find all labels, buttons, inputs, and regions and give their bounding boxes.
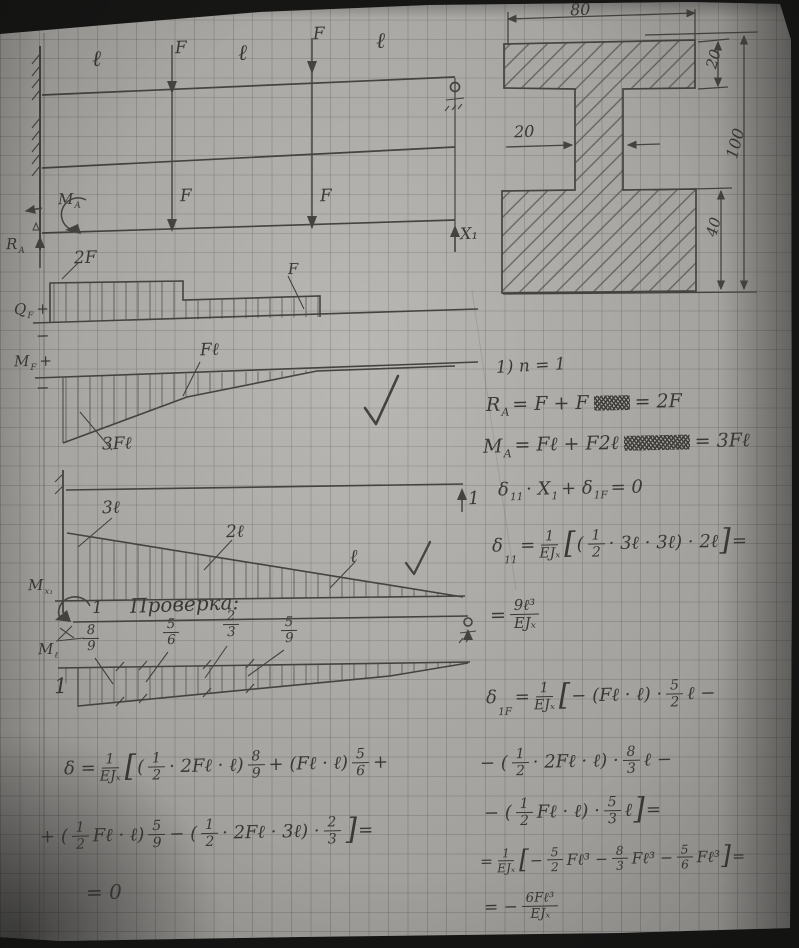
beam-mid-line: [42, 147, 455, 168]
unit-moment-diagram: [55, 470, 467, 613]
mx1-axis-label: Mx₁: [28, 576, 55, 595]
check-frac1: 89: [80, 624, 103, 654]
check-diagram: [55, 597, 476, 707]
mf-peak-label: 3Fℓ: [102, 433, 132, 454]
notebook-page: 80 20 20 100 40 ℓ F ℓ F ℓ MA RA F F X₁ Q…: [0, 0, 799, 948]
check-axis-label: Mℓ: [38, 640, 60, 658]
unit-beam-line: [66, 484, 463, 490]
check-left-ordinate-label: 1: [54, 674, 68, 698]
wall-hatching: [32, 54, 40, 176]
mx1-value3-label: ℓ: [350, 546, 358, 567]
beam2-force2-label: F: [320, 186, 332, 206]
beam1-force1-label: F: [175, 38, 187, 58]
formula-d11-result: = 9ℓ³EJₓ: [490, 597, 543, 631]
checkmark-2: [406, 542, 430, 574]
dim-width-label: 80: [570, 0, 591, 19]
formula-d11: δ11 = 1EJₓ[ (12· 3ℓ · 3ℓ) · 2ℓ ] =: [492, 523, 748, 563]
i-section-outline: [502, 40, 696, 293]
mx1-value2-label: 2ℓ: [226, 522, 245, 543]
beam1-force2-label: F: [313, 24, 325, 44]
dim-web-label: 20: [514, 122, 535, 142]
checkmark-1: [365, 376, 398, 424]
formula-check-2: + (12 Fℓ · ℓ) 59 − (12 · 2Fℓ · 3ℓ) · 23 …: [40, 813, 374, 855]
mf-axis-label: MF +: [14, 352, 52, 371]
check-frac3: 23: [220, 610, 243, 640]
photo-scene: 80 20 20 100 40 ℓ F ℓ F ℓ MA RA F F X₁ Q…: [0, 0, 799, 948]
beam1-seg3-label: ℓ: [376, 28, 386, 54]
mx1-value1-label: 3ℓ: [102, 498, 121, 519]
formula-d1f-result: = − 6Fℓ³EJₓ: [484, 891, 562, 922]
formula-d1f-4: = 1EJₓ[− 52 Fℓ³ − 83 Fℓ³ − 56 Fℓ³ ] =: [480, 841, 746, 877]
shear-diagram: [33, 263, 478, 323]
check-frac2: 56: [160, 618, 183, 648]
drawings-layer: [0, 0, 799, 948]
formula-d1f-1: δ1F = 1EJₓ[− (Fℓ · ℓ) · 52 ℓ −: [486, 676, 716, 716]
beam1-seg1-label: ℓ: [92, 46, 102, 72]
mf-kink-label: Fℓ: [200, 340, 220, 361]
ma-label: MA: [58, 190, 83, 209]
beam2-line: [42, 220, 455, 233]
check-frac4: 59: [278, 616, 301, 646]
qf-value1-label: 2F: [74, 248, 97, 269]
qf-value2-label: F: [288, 260, 299, 278]
ra-label: RA: [6, 235, 27, 253]
beam2-force1-label: F: [180, 186, 192, 206]
formula-n: 1) n = 1: [496, 354, 567, 378]
x1-label: X₁: [460, 224, 478, 244]
beam1-line: [42, 77, 455, 95]
qf-axis-label: QF +: [14, 300, 49, 319]
beam1-seg2-label: ℓ: [238, 40, 248, 66]
mx1-unit-force-label: 1: [468, 488, 480, 509]
qf-minus-label: −: [36, 326, 50, 345]
formula-ra: RA = F + F = 2F: [486, 390, 682, 416]
mf-minus-label: −: [36, 378, 50, 397]
formula-canonical: δ11· X1 + δ1F = 0: [498, 476, 643, 500]
formula-check-1: δ = 1EJₓ[ (12· 2Fℓ · ℓ) 89 + (Fℓ · ℓ) 56…: [64, 745, 389, 787]
formula-d1f-2: − (12 · 2Fℓ · ℓ) · 83 ℓ −: [480, 744, 673, 779]
formula-check-result: = 0: [86, 880, 122, 905]
formula-d1f-3: − (12 Fℓ · ℓ) · 53 ℓ ] =: [484, 792, 662, 831]
check-unit-moment-label: 1: [92, 598, 104, 618]
